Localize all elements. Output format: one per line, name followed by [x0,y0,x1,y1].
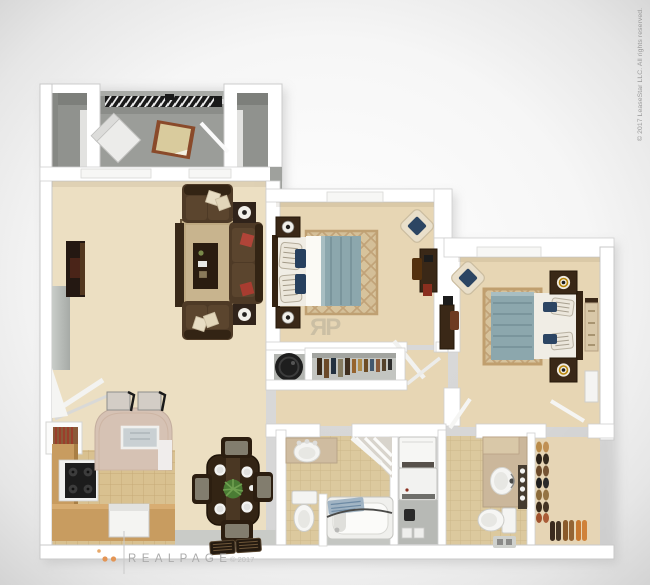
svg-text:ЯP: ЯP [310,314,341,341]
svg-text:REALPAGE: REALPAGE [128,553,232,565]
svg-text:© 2017: © 2017 [230,555,254,564]
svg-text:© 2017 LeaseStar LLC. All righ: © 2017 LeaseStar LLC. All rights reserve… [636,8,644,141]
